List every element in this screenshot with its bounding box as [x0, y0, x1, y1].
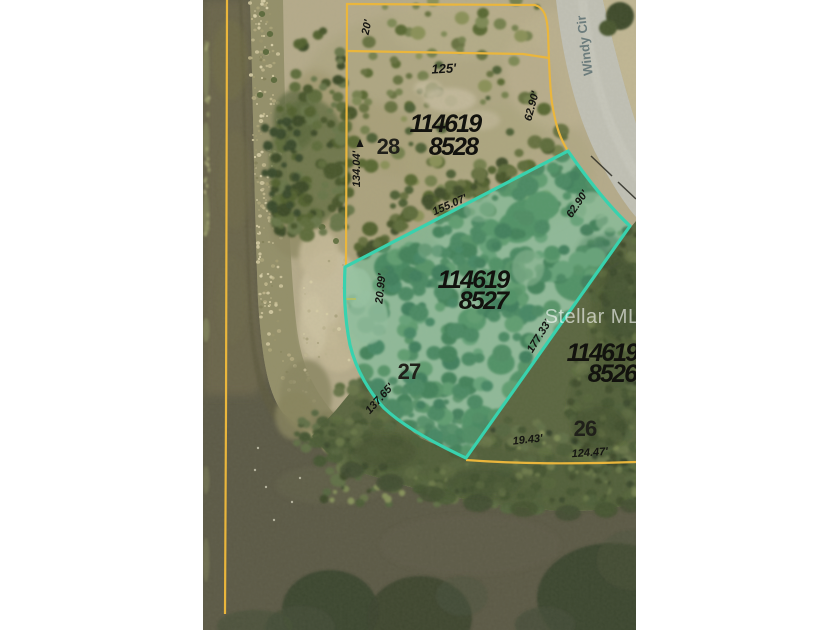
- svg-text:28: 28: [377, 134, 400, 159]
- svg-text:8528: 8528: [429, 133, 479, 161]
- svg-text:27: 27: [398, 359, 421, 384]
- svg-text:124.47': 124.47': [571, 446, 608, 461]
- svg-text:125': 125': [431, 60, 457, 76]
- svg-text:8527: 8527: [459, 287, 510, 315]
- svg-text:134.04': 134.04': [351, 150, 363, 187]
- svg-text:8526: 8526: [588, 360, 639, 388]
- svg-text:26: 26: [574, 416, 597, 441]
